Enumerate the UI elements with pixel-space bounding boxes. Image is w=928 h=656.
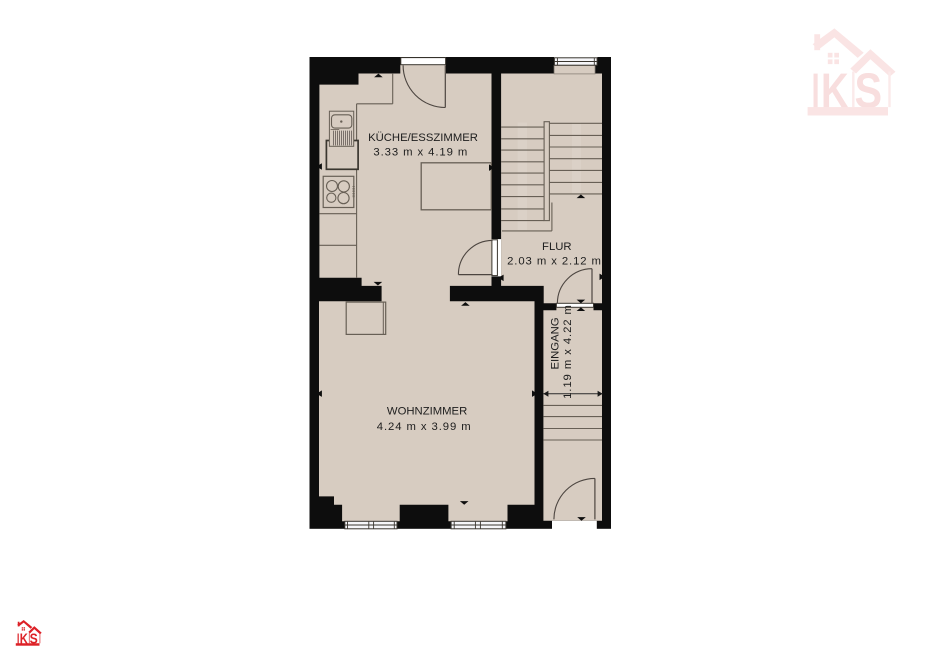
svg-text:4.24 m x 3.99 m: 4.24 m x 3.99 m xyxy=(377,421,472,433)
svg-text:2.03 m x 2.12 m: 2.03 m x 2.12 m xyxy=(507,256,602,268)
svg-text:EINGANG: EINGANG xyxy=(550,317,562,369)
svg-text:WOHNZIMMER: WOHNZIMMER xyxy=(387,406,467,418)
svg-text:3.33 m x 4.19 m: 3.33 m x 4.19 m xyxy=(373,146,468,158)
svg-text:1.19 m x 4.22 m: 1.19 m x 4.22 m xyxy=(562,304,574,399)
svg-text:FLUR: FLUR xyxy=(542,241,572,253)
svg-text:KÜCHE/ESSZIMMER: KÜCHE/ESSZIMMER xyxy=(368,132,478,144)
